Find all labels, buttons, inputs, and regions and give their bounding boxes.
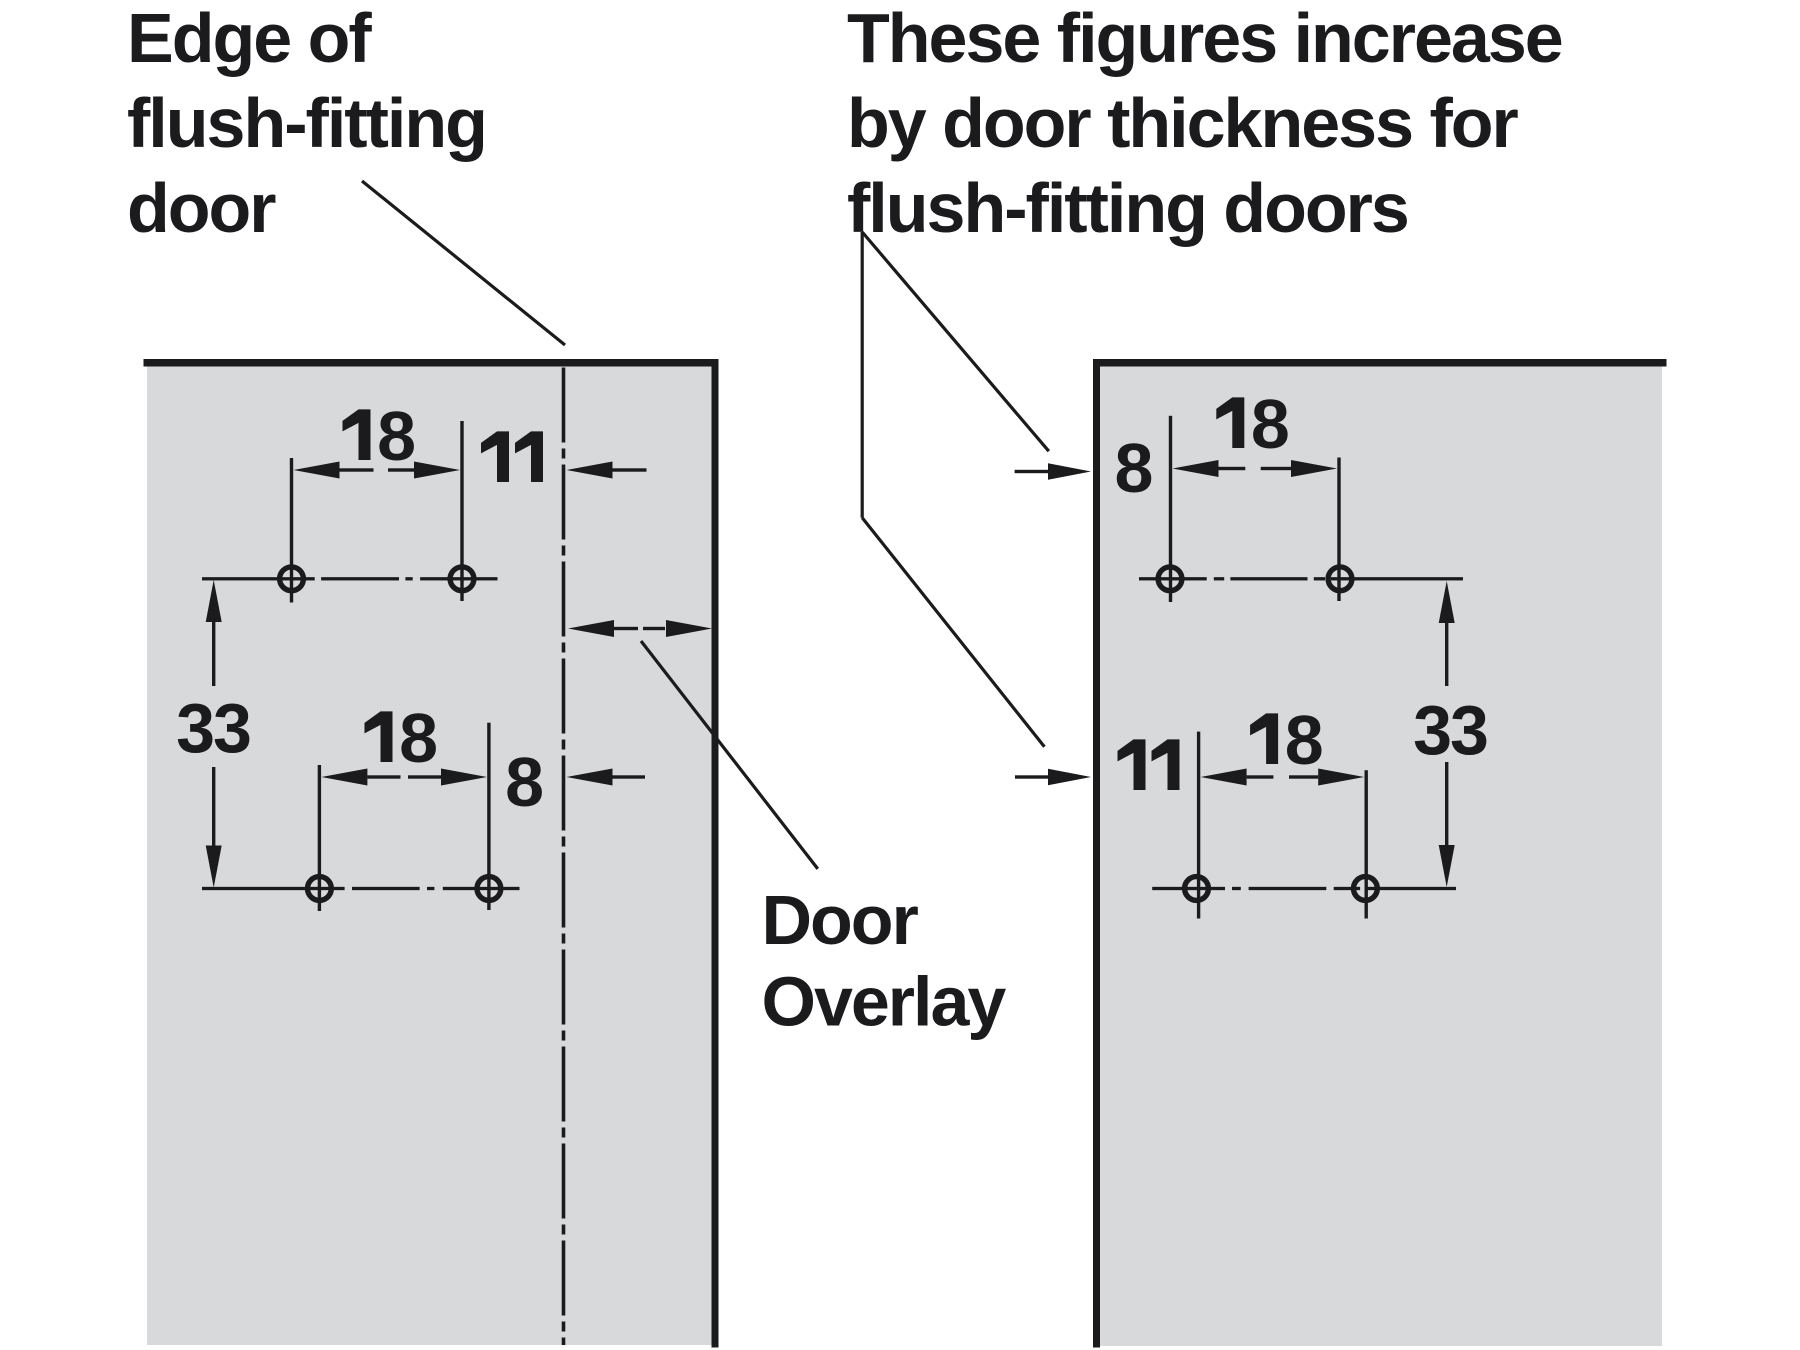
svg-text:8: 8 [1115, 429, 1152, 507]
svg-text:Edge of: Edge of [127, 0, 372, 77]
svg-text:8: 8 [399, 699, 436, 777]
svg-text:flush-fitting: flush-fitting [127, 84, 486, 162]
svg-text:33: 33 [1413, 691, 1487, 769]
svg-text:flush-fitting doors: flush-fitting doors [847, 169, 1408, 247]
svg-text:33: 33 [176, 689, 250, 767]
svg-text:Overlay: Overlay [762, 963, 1007, 1041]
svg-text:These figures increase: These figures increase [847, 0, 1562, 77]
svg-text:8: 8 [1285, 701, 1322, 779]
svg-text:Door: Door [762, 881, 919, 959]
svg-text:8: 8 [377, 397, 414, 475]
svg-text:8: 8 [505, 743, 542, 821]
svg-text:8: 8 [1251, 385, 1288, 463]
svg-text:by door thickness for: by door thickness for [847, 84, 1519, 162]
svg-text:door: door [127, 169, 276, 247]
